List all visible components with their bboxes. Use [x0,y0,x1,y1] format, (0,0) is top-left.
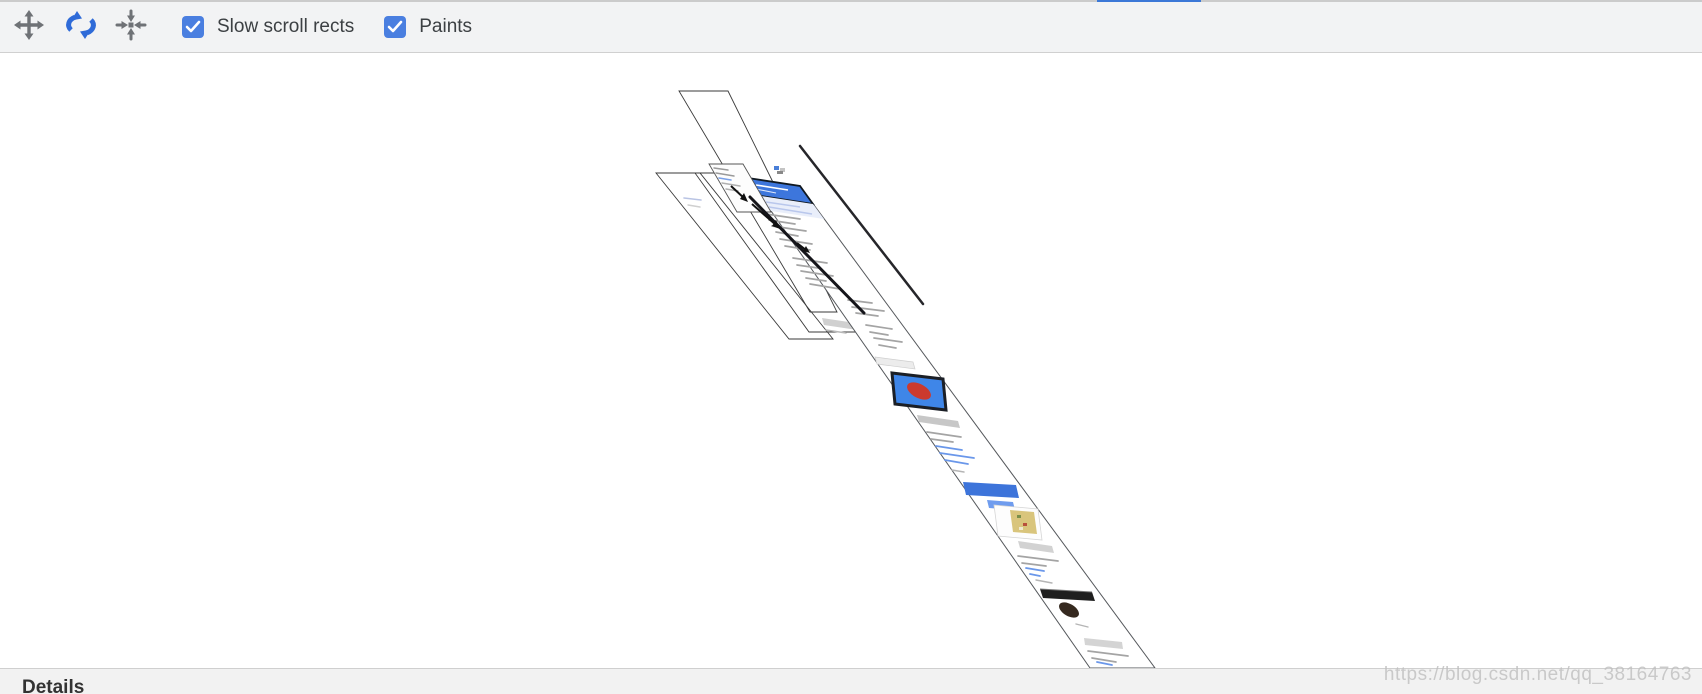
slow-scroll-rects-toggle[interactable]: Slow scroll rects [182,16,354,38]
slow-scroll-rects-checkbox[interactable] [182,16,204,38]
layers-3d-viewport[interactable] [0,54,1702,668]
rotate-icon [63,9,99,46]
layer-outlines[interactable] [656,91,858,339]
reset-view-button[interactable] [114,10,148,44]
layers-3d-scene [0,54,1702,668]
details-pane-title: Details [22,677,84,694]
watermark-text: https://blog.csdn.net/qq_38164763 [1384,664,1692,686]
layers-panel: Slow scroll rects Paints [0,0,1702,694]
slow-scroll-rects-label: Slow scroll rects [217,16,354,38]
pan-icon [13,9,45,46]
rotate-mode-button[interactable] [64,10,98,44]
paints-toggle[interactable]: Paints [384,16,472,38]
layers-toolbar: Slow scroll rects Paints [0,2,1702,53]
thumbnail-block [1010,510,1037,534]
center-view-icon [115,9,147,46]
pan-mode-button[interactable] [12,10,46,44]
checkmark-icon [185,20,201,34]
checkmark-icon [387,20,403,34]
paints-label: Paints [419,16,472,38]
paints-checkbox[interactable] [384,16,406,38]
